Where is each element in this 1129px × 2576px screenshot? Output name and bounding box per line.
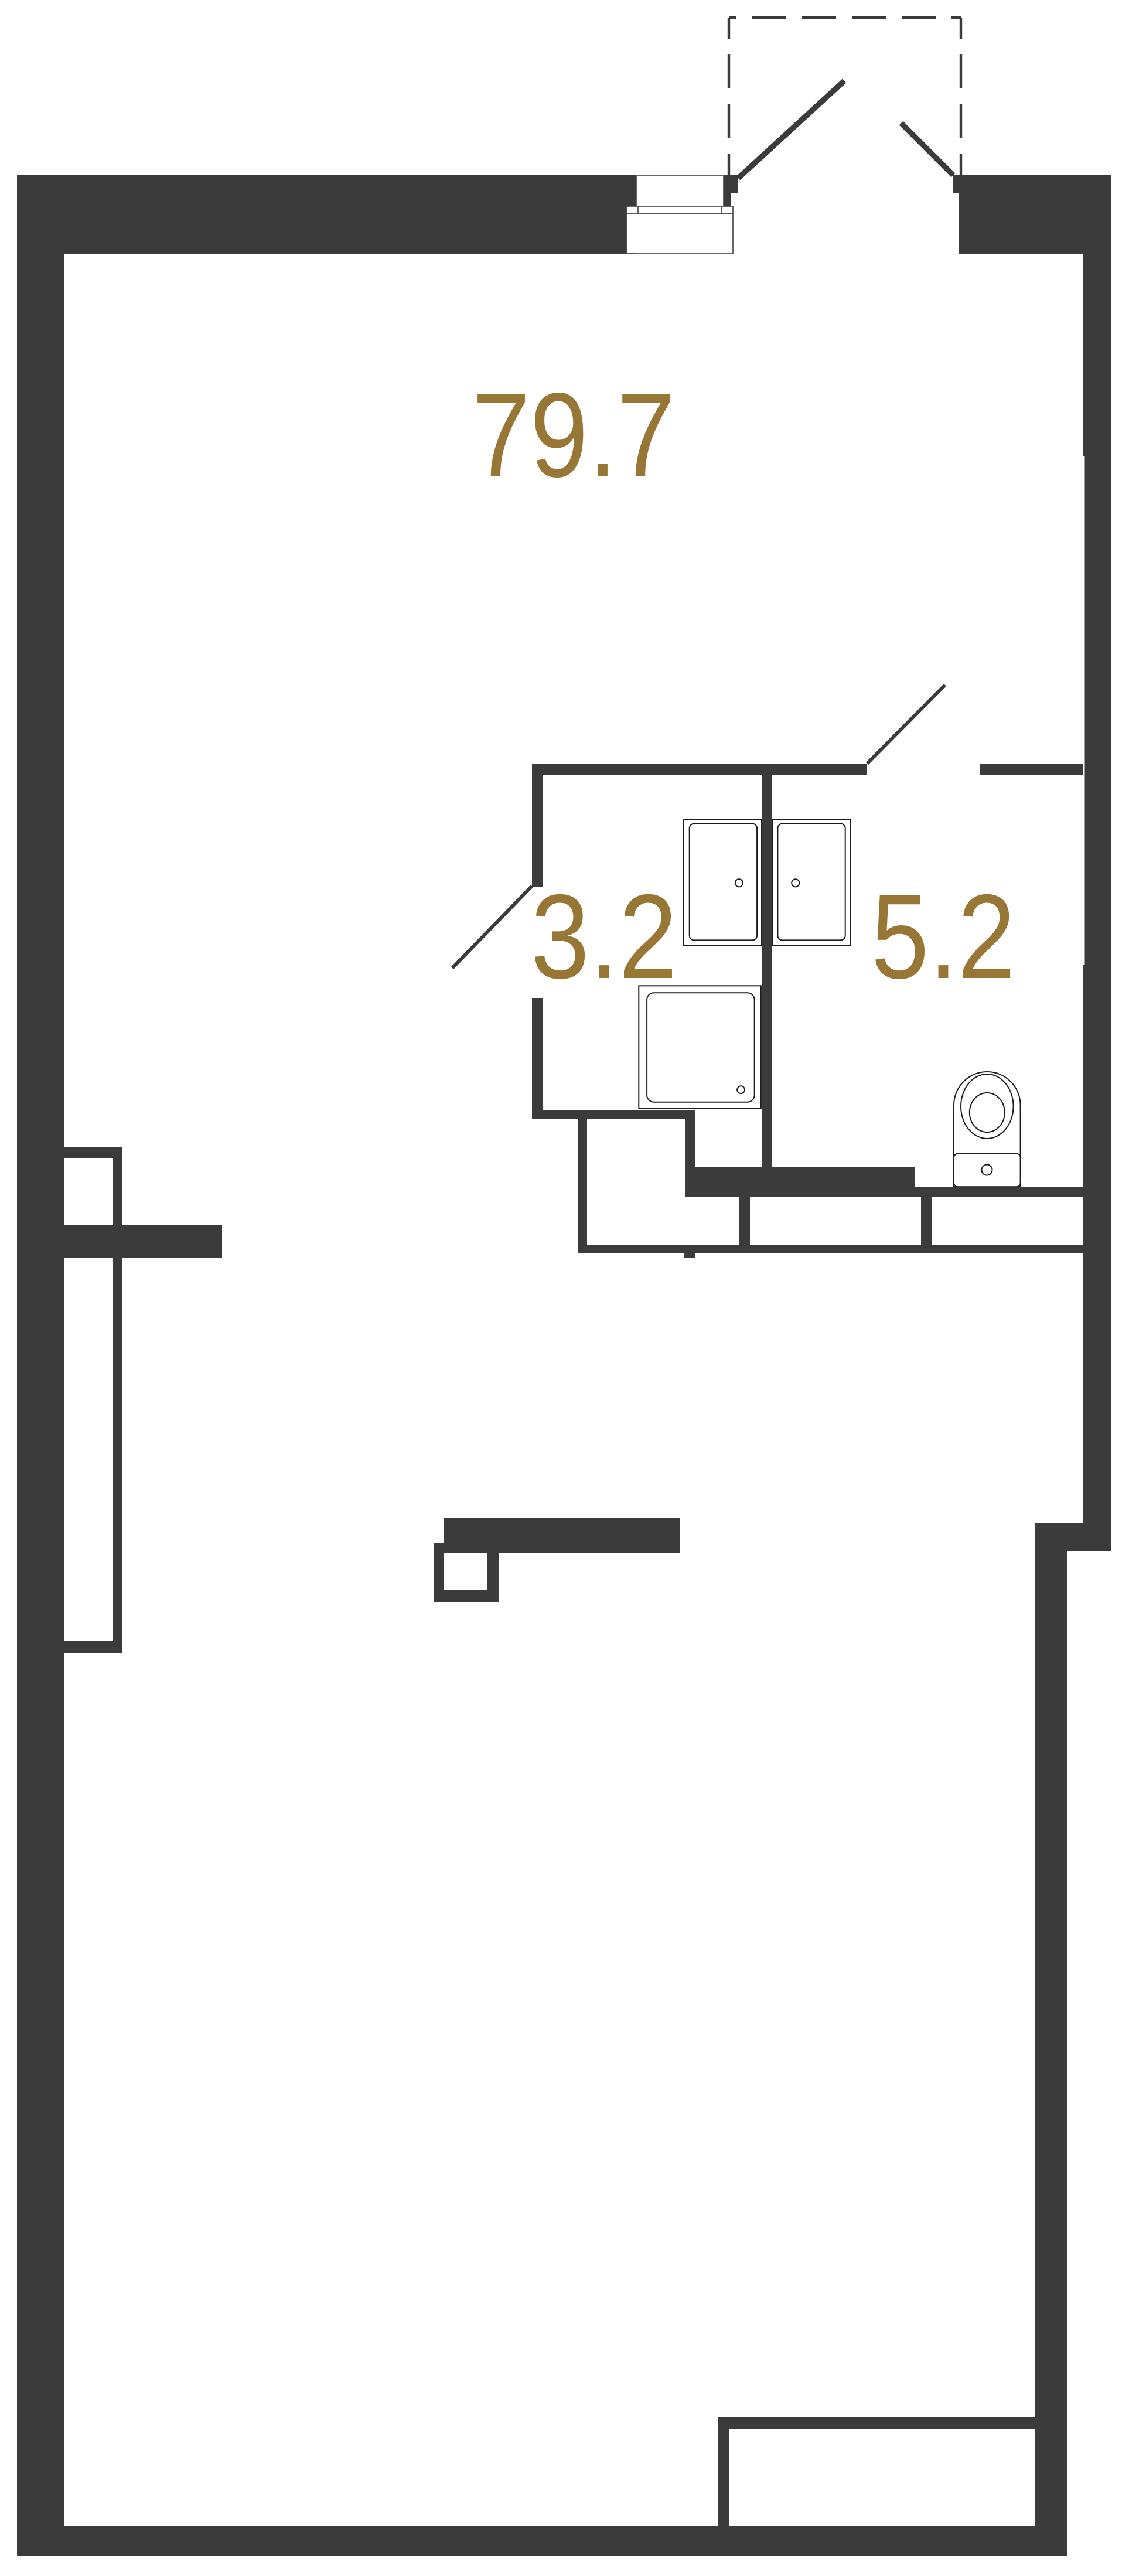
svg-text:5.2: 5.2 bbox=[871, 870, 1015, 1004]
svg-text:3.2: 3.2 bbox=[531, 870, 677, 1004]
svg-text:79.7: 79.7 bbox=[472, 368, 675, 502]
